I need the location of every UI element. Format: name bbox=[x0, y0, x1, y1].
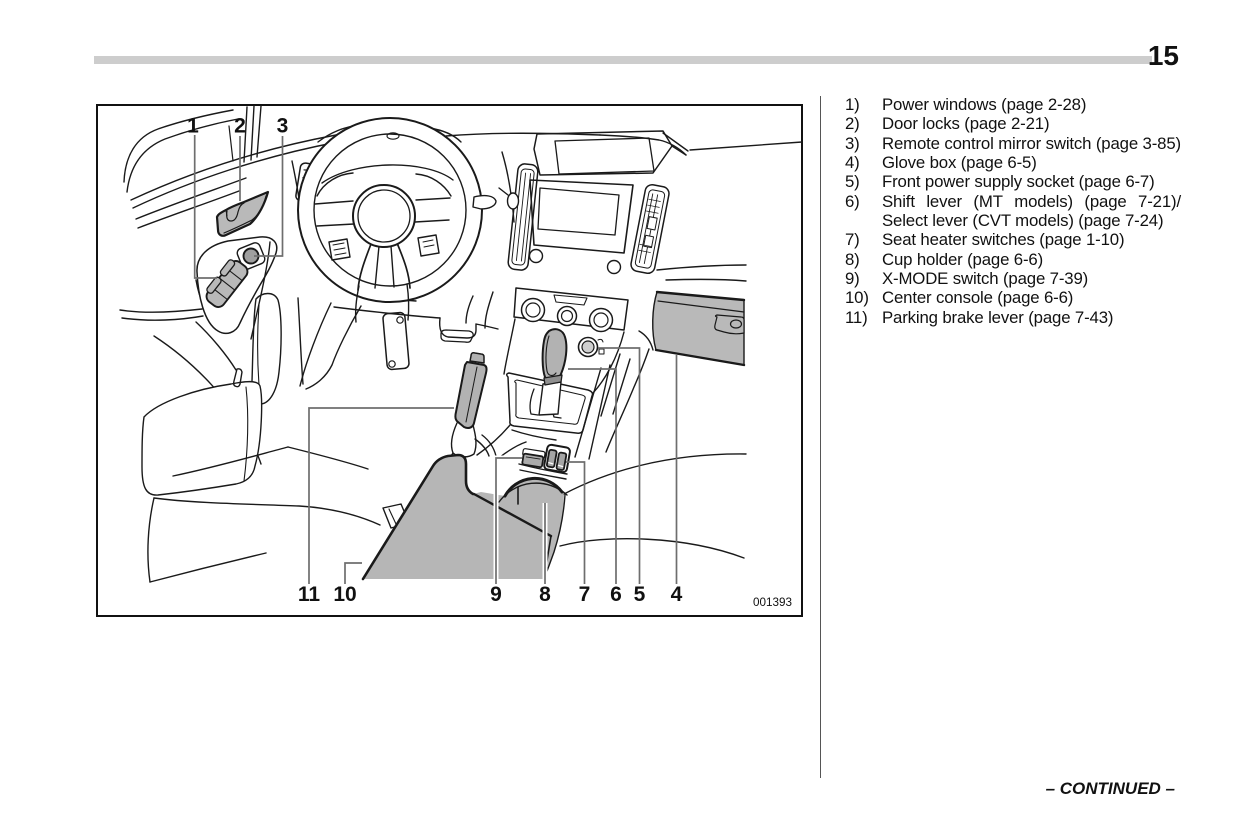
svg-text:10: 10 bbox=[333, 583, 356, 606]
svg-text:7: 7 bbox=[579, 583, 591, 606]
svg-text:4: 4 bbox=[671, 583, 683, 606]
svg-text:11: 11 bbox=[298, 583, 321, 606]
svg-text:3: 3 bbox=[277, 115, 289, 138]
svg-text:2: 2 bbox=[234, 115, 246, 138]
svg-text:9: 9 bbox=[490, 583, 502, 606]
svg-text:8: 8 bbox=[539, 583, 551, 606]
svg-text:6: 6 bbox=[610, 583, 622, 606]
svg-text:5: 5 bbox=[634, 583, 646, 606]
svg-text:001393: 001393 bbox=[753, 596, 792, 609]
svg-text:1: 1 bbox=[187, 115, 199, 138]
